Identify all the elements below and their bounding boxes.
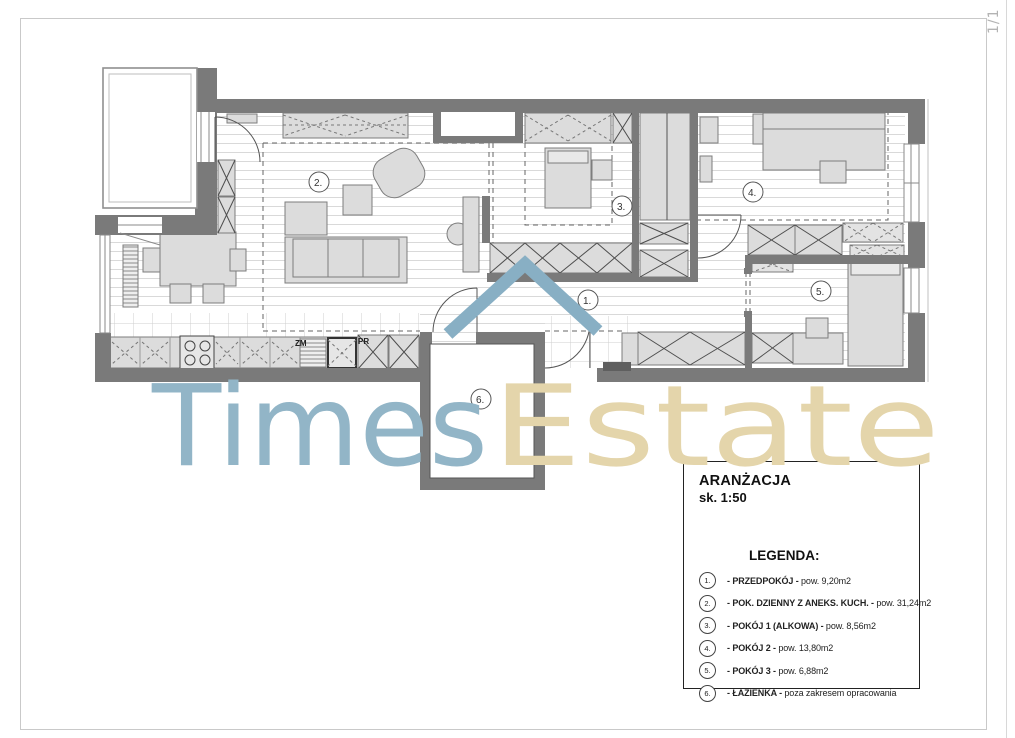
roof-icon [448, 264, 598, 334]
drawing-sheet: 1/1 [0, 0, 1015, 738]
watermark: Times Estate [0, 0, 1015, 738]
watermark-times: Times [151, 362, 488, 492]
watermark-estate: Estate [492, 362, 940, 492]
